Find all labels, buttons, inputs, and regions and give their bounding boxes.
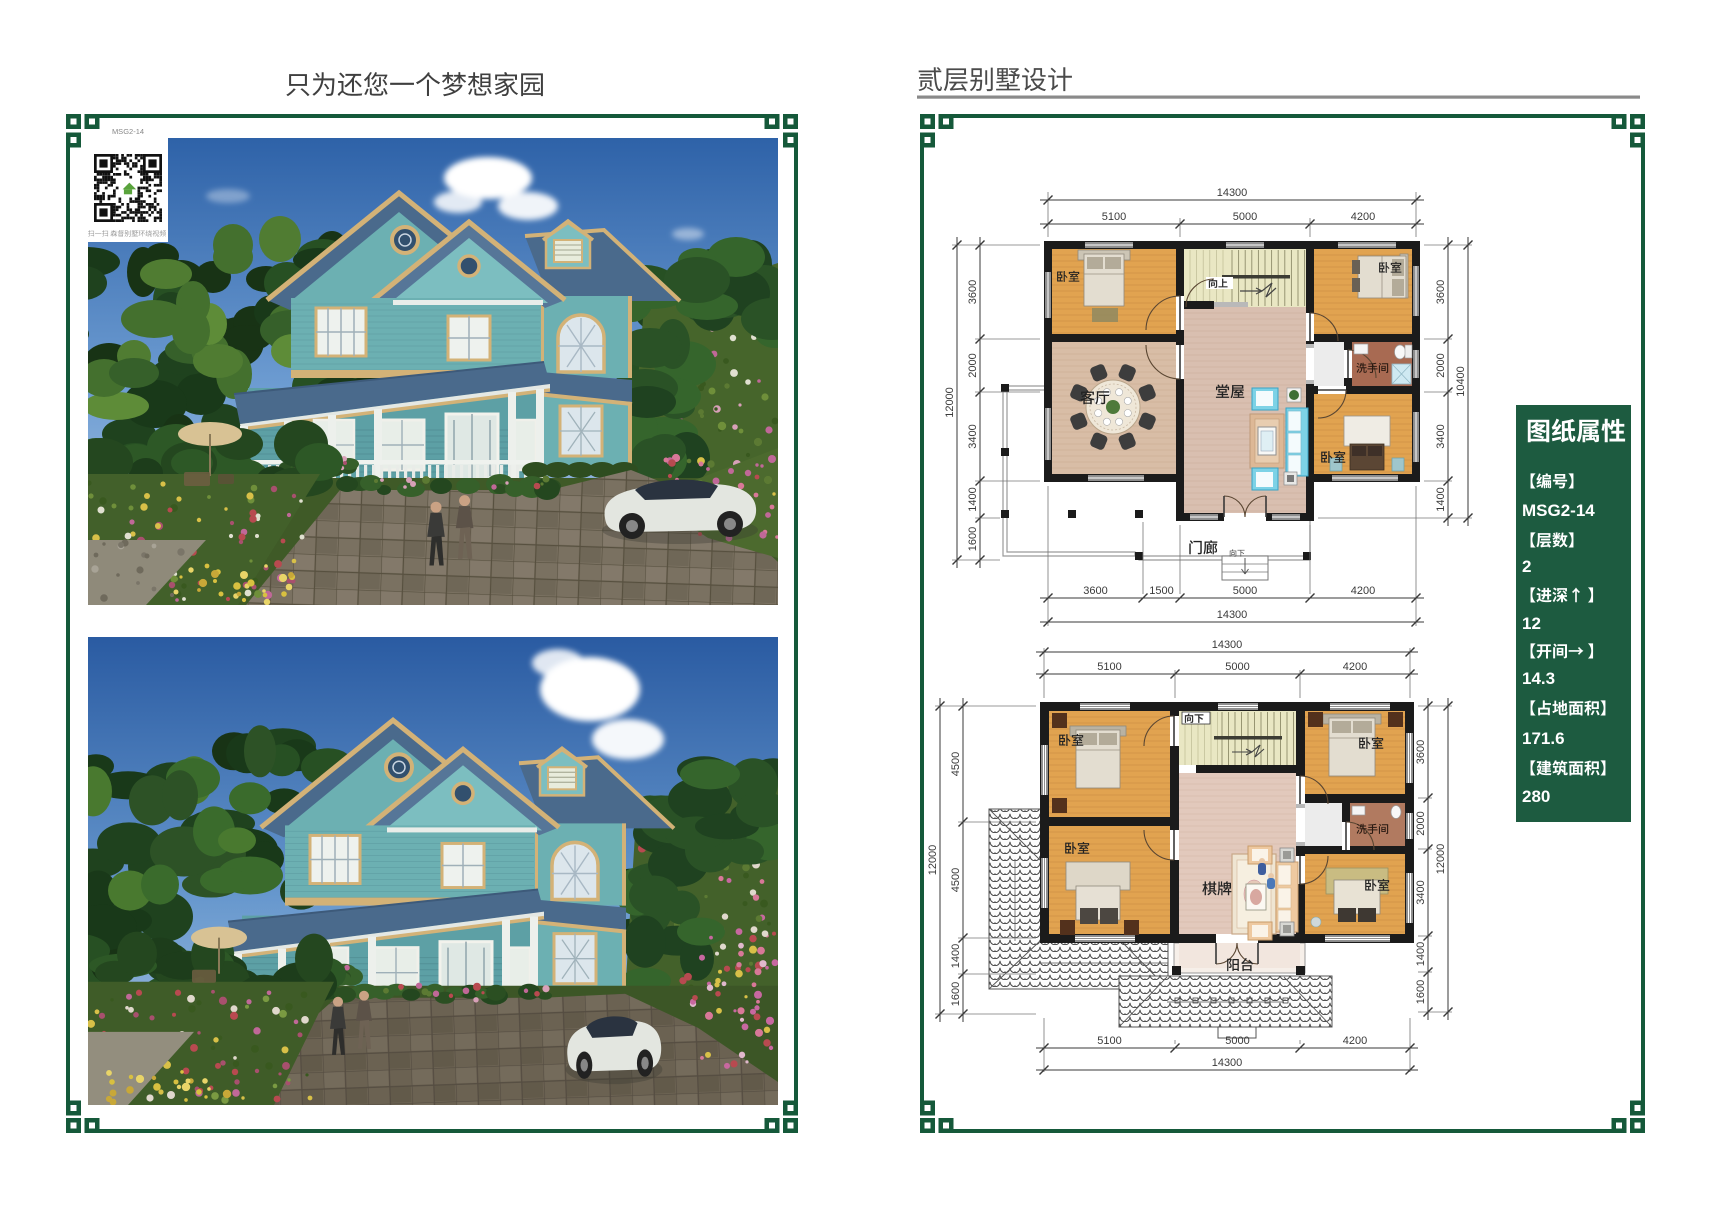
svg-text:5100: 5100 <box>1097 1035 1121 1047</box>
svg-text:2000: 2000 <box>1435 353 1447 377</box>
svg-text:10400: 10400 <box>1455 366 1467 397</box>
svg-text:2: 2 <box>1522 557 1531 576</box>
svg-text:1400: 1400 <box>1435 487 1447 511</box>
svg-text:1500: 1500 <box>1149 585 1173 597</box>
svg-text:4200: 4200 <box>1351 585 1375 597</box>
svg-text:14300: 14300 <box>1212 1057 1243 1069</box>
svg-text:3400: 3400 <box>967 424 979 448</box>
svg-text:14300: 14300 <box>1217 187 1248 199</box>
svg-text:280: 280 <box>1522 787 1550 806</box>
svg-text:5000: 5000 <box>1233 585 1257 597</box>
svg-text:3600: 3600 <box>1415 740 1427 764</box>
svg-text:1600: 1600 <box>967 527 979 551</box>
svg-text:12000: 12000 <box>1435 844 1447 875</box>
svg-text:1600: 1600 <box>1415 980 1427 1004</box>
svg-text:2000: 2000 <box>1415 811 1427 835</box>
svg-text:3400: 3400 <box>1435 424 1447 448</box>
svg-text:14.3: 14.3 <box>1522 669 1555 688</box>
svg-text:5100: 5100 <box>1097 661 1121 673</box>
svg-text:3400: 3400 <box>1415 880 1427 904</box>
svg-text:14300: 14300 <box>1217 609 1248 621</box>
svg-text:4200: 4200 <box>1343 661 1367 673</box>
svg-text:5000: 5000 <box>1225 1035 1249 1047</box>
svg-text:1400: 1400 <box>967 487 979 511</box>
svg-text:12: 12 <box>1522 614 1541 633</box>
svg-text:12000: 12000 <box>927 845 939 876</box>
svg-text:4500: 4500 <box>950 868 962 892</box>
svg-text:5100: 5100 <box>1102 211 1126 223</box>
svg-text:12000: 12000 <box>944 387 956 418</box>
svg-text:1400: 1400 <box>950 944 962 968</box>
svg-text:3600: 3600 <box>1435 280 1447 304</box>
svg-text:171.6: 171.6 <box>1522 729 1565 748</box>
svg-text:MSG2-14: MSG2-14 <box>112 127 144 136</box>
svg-text:4200: 4200 <box>1351 211 1375 223</box>
svg-text:1600: 1600 <box>950 982 962 1006</box>
svg-text:5000: 5000 <box>1233 211 1257 223</box>
svg-text:4200: 4200 <box>1343 1035 1367 1047</box>
svg-text:4500: 4500 <box>950 752 962 776</box>
svg-text:3600: 3600 <box>1083 585 1107 597</box>
svg-text:2000: 2000 <box>967 353 979 377</box>
svg-text:MSG2-14: MSG2-14 <box>1522 501 1595 520</box>
svg-text:14300: 14300 <box>1212 639 1243 651</box>
svg-text:3600: 3600 <box>967 280 979 304</box>
svg-text:5000: 5000 <box>1225 661 1249 673</box>
svg-text:1400: 1400 <box>1415 942 1427 966</box>
